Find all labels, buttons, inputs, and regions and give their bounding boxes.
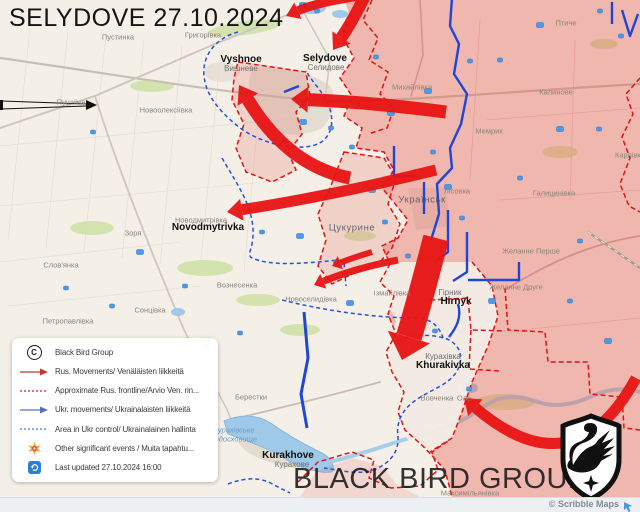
map-poi-icon <box>425 89 432 94</box>
map-poi-icon <box>557 127 564 132</box>
map-poi-icon <box>518 176 523 180</box>
map-poi-icon <box>238 331 243 335</box>
blue-dashed-icon <box>19 424 49 434</box>
legend-label: Rus. Movements/ Venäläisten liikkeitä <box>55 367 184 376</box>
map-poi-icon <box>300 120 307 125</box>
legend-panel: C Black Bird Group Rus. Movements/ Venäl… <box>12 338 218 482</box>
map-poi-icon <box>297 234 304 239</box>
map-poi-icon <box>605 339 612 344</box>
map-poi-icon <box>329 126 334 130</box>
map-poi-icon <box>183 284 188 288</box>
map-poi-icon <box>619 34 624 38</box>
map-poi-icon <box>537 23 544 28</box>
legend-row-ukr-movements: Ukr. movements/ Ukrainalaisten liikkeitä <box>19 401 214 418</box>
blue-arrow-icon <box>19 405 49 415</box>
legend-label: Approximate Rus. frontline/Arvio Ven. ri… <box>55 386 199 395</box>
scribble-maps-link[interactable]: © Scribble Maps <box>549 499 619 509</box>
legend-row-ukr-control: Area in Ukr control/ Ukrainalainen halli… <box>19 421 214 438</box>
measure-arrow <box>0 100 97 110</box>
map-poi-icon <box>489 299 496 304</box>
legend-row-other-events: Other significant events / Muita tapahtu… <box>19 440 214 457</box>
map-poi-icon <box>260 230 265 234</box>
war-map-screenshot: BLACK BIRD GROUP ПустинкаГригорівкаVyshn… <box>0 0 640 512</box>
map-poi-icon <box>431 150 436 154</box>
map-poi-icon <box>383 220 388 224</box>
map-poi-icon <box>350 145 355 149</box>
red-dashed-icon <box>19 386 49 396</box>
map-poi-icon <box>598 9 603 13</box>
cursor-icon <box>622 499 634 512</box>
map-title: SELYDOVE 27.10.2024 <box>9 4 284 33</box>
map-poi-icon <box>468 59 473 63</box>
map-poi-icon <box>467 387 472 391</box>
refresh-icon <box>19 461 49 474</box>
legend-label: Ukr. movements/ Ukrainalaisten liikkeitä <box>55 405 190 414</box>
map-poi-icon <box>347 301 354 306</box>
copyright-icon: C <box>19 345 49 360</box>
legend-label: Area in Ukr control/ Ukrainalainen halli… <box>55 425 196 434</box>
red-arrow-icon <box>19 367 49 377</box>
map-poi-icon <box>406 254 411 258</box>
map-poi-icon <box>460 216 465 220</box>
map-poi-icon <box>597 127 602 131</box>
legend-row-rus-frontline: Approximate Rus. frontline/Arvio Ven. ri… <box>19 382 214 399</box>
map-poi-icon <box>91 130 96 134</box>
legend-row-attribution: C Black Bird Group <box>19 344 214 361</box>
legend-row-last-updated: Last updated 27.10.2024 16:00 <box>19 459 214 476</box>
map-poi-icon <box>315 9 320 13</box>
map-poi-icon <box>445 185 452 190</box>
map-poi-icon <box>568 299 573 303</box>
legend-row-rus-movements: Rus. Movements/ Venäläisten liikkeitä <box>19 363 214 380</box>
map-poi-icon <box>64 286 69 290</box>
legend-label: Last updated 27.10.2024 16:00 <box>55 463 161 472</box>
starburst-icon <box>19 442 49 455</box>
watermark: BLACK BIRD GROUP <box>293 463 588 495</box>
black-bird-group-logo <box>556 413 626 508</box>
map-poi-icon <box>578 239 583 243</box>
movement-arrow-head <box>227 199 244 221</box>
map-poi-icon <box>498 58 503 62</box>
map-poi-icon <box>137 250 144 255</box>
legend-label: Black Bird Group <box>55 348 113 357</box>
attribution-bar: © Scribble Maps <box>0 497 640 512</box>
map-poi-icon <box>110 304 115 308</box>
map-poi-icon <box>374 55 379 59</box>
legend-label: Other significant events / Muita tapahtu… <box>55 444 194 453</box>
map-poi-icon <box>433 329 438 333</box>
